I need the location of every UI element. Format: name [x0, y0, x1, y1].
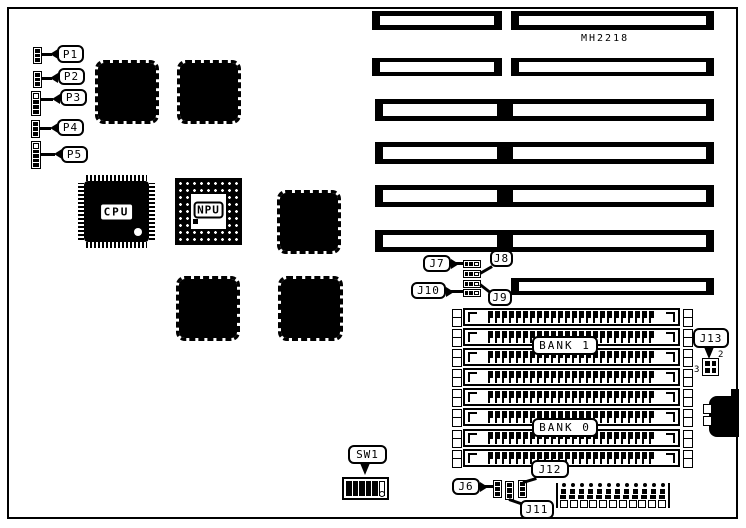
header-p2	[33, 71, 42, 88]
motherboard-diagram: MH2218 CPU NPU P1 P2 P3	[0, 0, 746, 528]
npu-label: NPU	[193, 202, 224, 219]
label-bank0: BANK 0	[532, 418, 598, 437]
simm-socket	[452, 449, 692, 468]
label-j12: J12	[531, 460, 569, 478]
expansion-slot	[511, 58, 714, 76]
ic-chip	[277, 190, 341, 254]
expansion-slot	[375, 185, 505, 207]
board-part-number: MH2218	[581, 33, 629, 44]
expansion-slot	[505, 185, 714, 207]
header-p1	[33, 47, 42, 64]
simm-socket	[452, 308, 692, 327]
jumper-j10	[463, 289, 481, 297]
simm-socket-area	[452, 308, 692, 470]
power-connector-cells	[560, 500, 666, 508]
keyboard-connector	[709, 396, 739, 437]
label-j8: J8	[490, 250, 513, 267]
header-p5	[31, 141, 41, 169]
npu-pin1-dot	[193, 219, 198, 224]
simm-socket	[452, 368, 692, 387]
expansion-slot	[375, 99, 505, 121]
keyboard-connector-step	[731, 389, 739, 397]
keyboard-connector-notch	[703, 404, 712, 414]
expansion-slot	[505, 142, 714, 164]
label-p5: P5	[61, 146, 88, 163]
ic-chip	[95, 60, 159, 124]
npu-socket: NPU	[175, 178, 242, 245]
power-connector-bar	[560, 495, 666, 499]
cpu-chip: CPU	[78, 175, 155, 248]
expansion-slot	[372, 11, 502, 30]
j13-pin3-label: 3	[694, 366, 699, 375]
dip-switch-knob	[379, 491, 385, 497]
label-p2: P2	[58, 68, 85, 85]
cpu-pins-right	[149, 183, 155, 240]
cpu-body: CPU	[84, 181, 149, 242]
header-p3	[31, 91, 41, 116]
npu-inner: NPU	[191, 194, 226, 229]
ic-chip	[176, 276, 240, 341]
label-j13: J13	[693, 328, 729, 348]
expansion-slot	[511, 11, 714, 30]
expansion-slot	[505, 230, 714, 252]
jumper-j7	[463, 260, 481, 268]
expansion-slot	[511, 278, 714, 295]
cpu-pin1-dot	[134, 228, 142, 236]
power-connector-pins	[561, 483, 665, 494]
expansion-slot	[375, 142, 505, 164]
expansion-slot	[372, 58, 502, 76]
ic-chip	[177, 60, 241, 124]
j13-pin2-label: 2	[718, 351, 723, 360]
expansion-slot	[505, 99, 714, 121]
label-bank1: BANK 1	[532, 336, 598, 355]
label-p4: P4	[57, 119, 84, 136]
header-p4	[31, 120, 40, 138]
keyboard-connector-notch	[703, 416, 712, 426]
label-j6: J6	[452, 478, 480, 495]
expansion-slot	[375, 230, 505, 252]
cpu-pins-bottom	[86, 242, 147, 248]
label-p1: P1	[57, 45, 84, 63]
label-j9: J9	[488, 289, 512, 306]
label-p3: P3	[60, 89, 87, 106]
jumper-j9	[463, 280, 481, 288]
jumper-j13	[702, 358, 719, 376]
label-sw1: SW1	[348, 445, 387, 464]
simm-socket	[452, 388, 692, 407]
dip-switch-sw1	[342, 477, 389, 500]
cpu-label: CPU	[101, 204, 133, 219]
label-j10: J10	[411, 282, 446, 299]
jumper-j6	[493, 480, 502, 498]
label-j11: J11	[520, 500, 554, 519]
label-j7: J7	[423, 255, 451, 272]
power-connector	[556, 483, 670, 508]
ic-chip	[278, 276, 343, 341]
